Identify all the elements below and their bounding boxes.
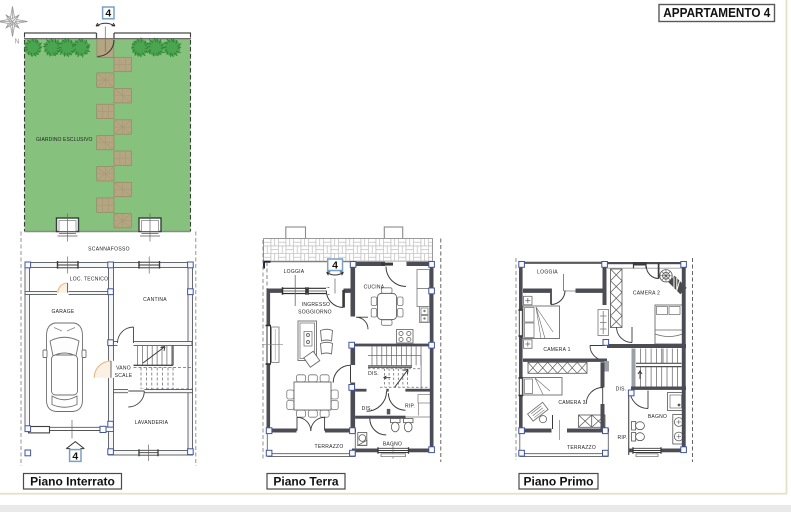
svg-text:LOC. TECNICO: LOC. TECNICO <box>70 277 108 283</box>
svg-text:CANTINA: CANTINA <box>143 297 167 303</box>
svg-text:TERRAZZO: TERRAZZO <box>567 445 596 451</box>
svg-text:BAGNO: BAGNO <box>383 442 402 448</box>
svg-text:GIARDINO ESCLUSIVO: GIARDINO ESCLUSIVO <box>36 137 93 143</box>
svg-text:GARAGE: GARAGE <box>52 309 75 315</box>
svg-text:LOGGIA: LOGGIA <box>284 269 305 275</box>
svg-text:INGRESSO: INGRESSO <box>302 302 330 308</box>
svg-text:SCALE: SCALE <box>115 373 133 379</box>
svg-text:LOGGIA: LOGGIA <box>537 270 558 276</box>
svg-text:SOGGIORNO: SOGGIORNO <box>298 310 332 316</box>
svg-text:DIS.: DIS. <box>368 371 379 377</box>
svg-text:N: N <box>14 39 19 46</box>
svg-text:CAMERA 2: CAMERA 2 <box>633 291 660 297</box>
svg-text:4: 4 <box>72 450 78 462</box>
svg-text:RIP.: RIP. <box>617 435 627 441</box>
svg-text:VANO: VANO <box>116 366 131 372</box>
svg-text:LAVANDERIA: LAVANDERIA <box>135 420 169 426</box>
svg-text:CAMERA 3: CAMERA 3 <box>558 400 585 406</box>
svg-text:BAGNO: BAGNO <box>648 414 667 420</box>
svg-text:Piano Terra: Piano Terra <box>273 474 338 488</box>
svg-text:CAMERA 1: CAMERA 1 <box>543 347 570 353</box>
svg-text:4: 4 <box>105 8 111 20</box>
svg-text:RIP.: RIP. <box>405 404 415 410</box>
svg-text:DIS.: DIS. <box>616 387 627 393</box>
svg-text:Piano Interrato: Piano Interrato <box>30 474 115 488</box>
svg-text:DIS.: DIS. <box>362 406 373 412</box>
svg-text:SCANNAFOSSO: SCANNAFOSSO <box>88 247 130 253</box>
svg-text:Piano Primo: Piano Primo <box>523 474 593 488</box>
svg-text:4: 4 <box>332 260 338 272</box>
svg-text:TERRAZZO: TERRAZZO <box>315 444 344 450</box>
svg-text:APPARTAMENTO 4: APPARTAMENTO 4 <box>663 6 770 20</box>
